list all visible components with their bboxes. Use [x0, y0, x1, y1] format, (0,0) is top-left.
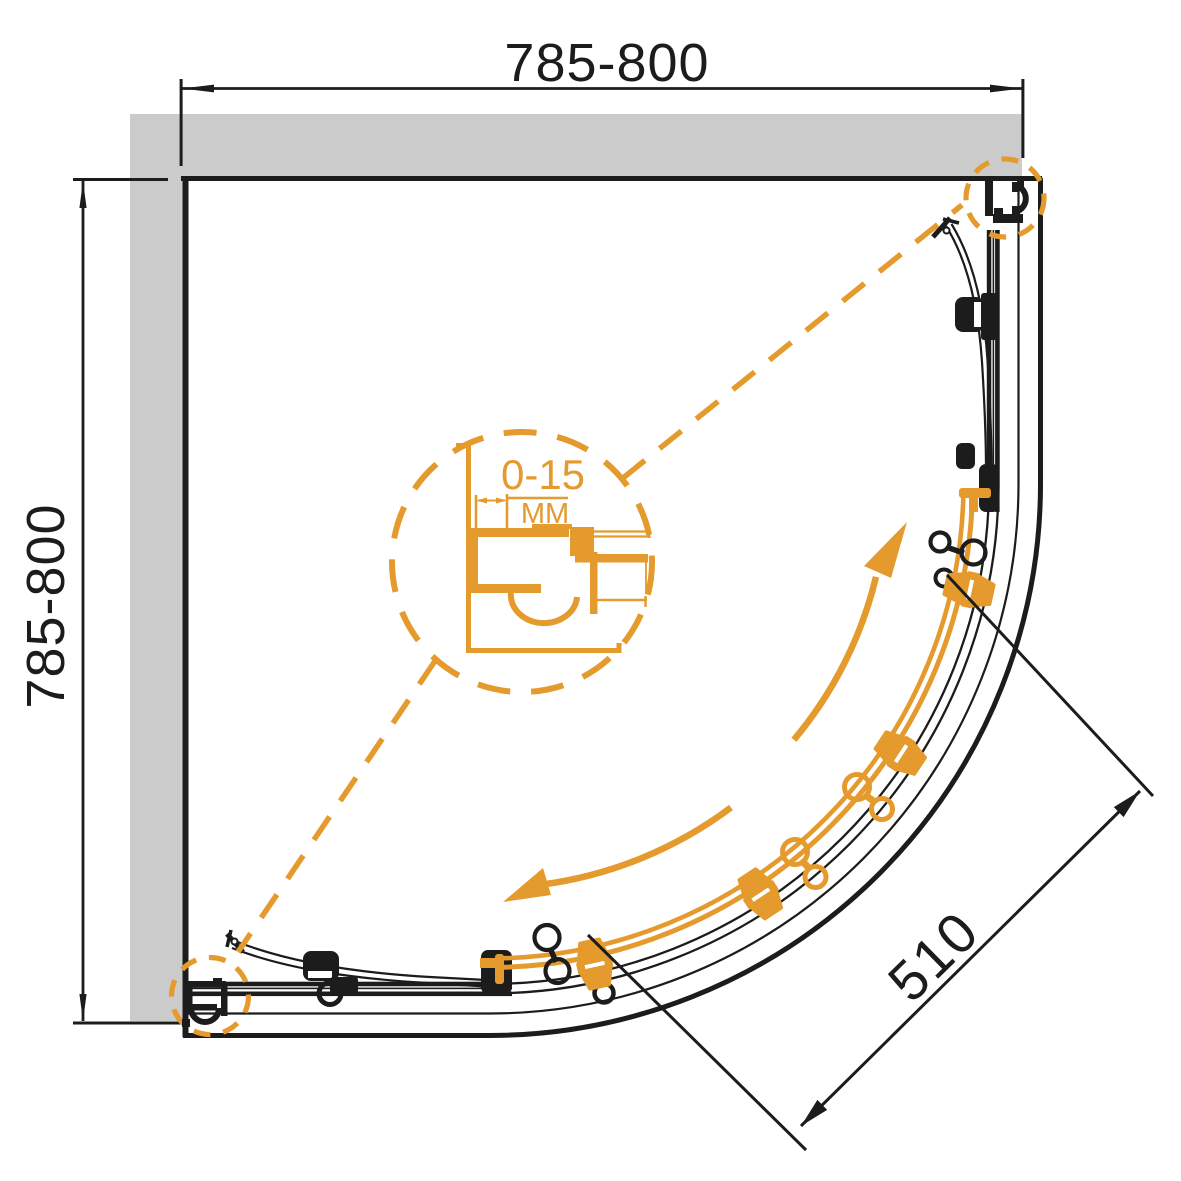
svg-text:785-800: 785-800 [16, 503, 76, 708]
svg-text:785-800: 785-800 [504, 33, 709, 93]
svg-text:510: 510 [876, 899, 991, 1014]
svg-text:0-15: 0-15 [501, 451, 585, 498]
